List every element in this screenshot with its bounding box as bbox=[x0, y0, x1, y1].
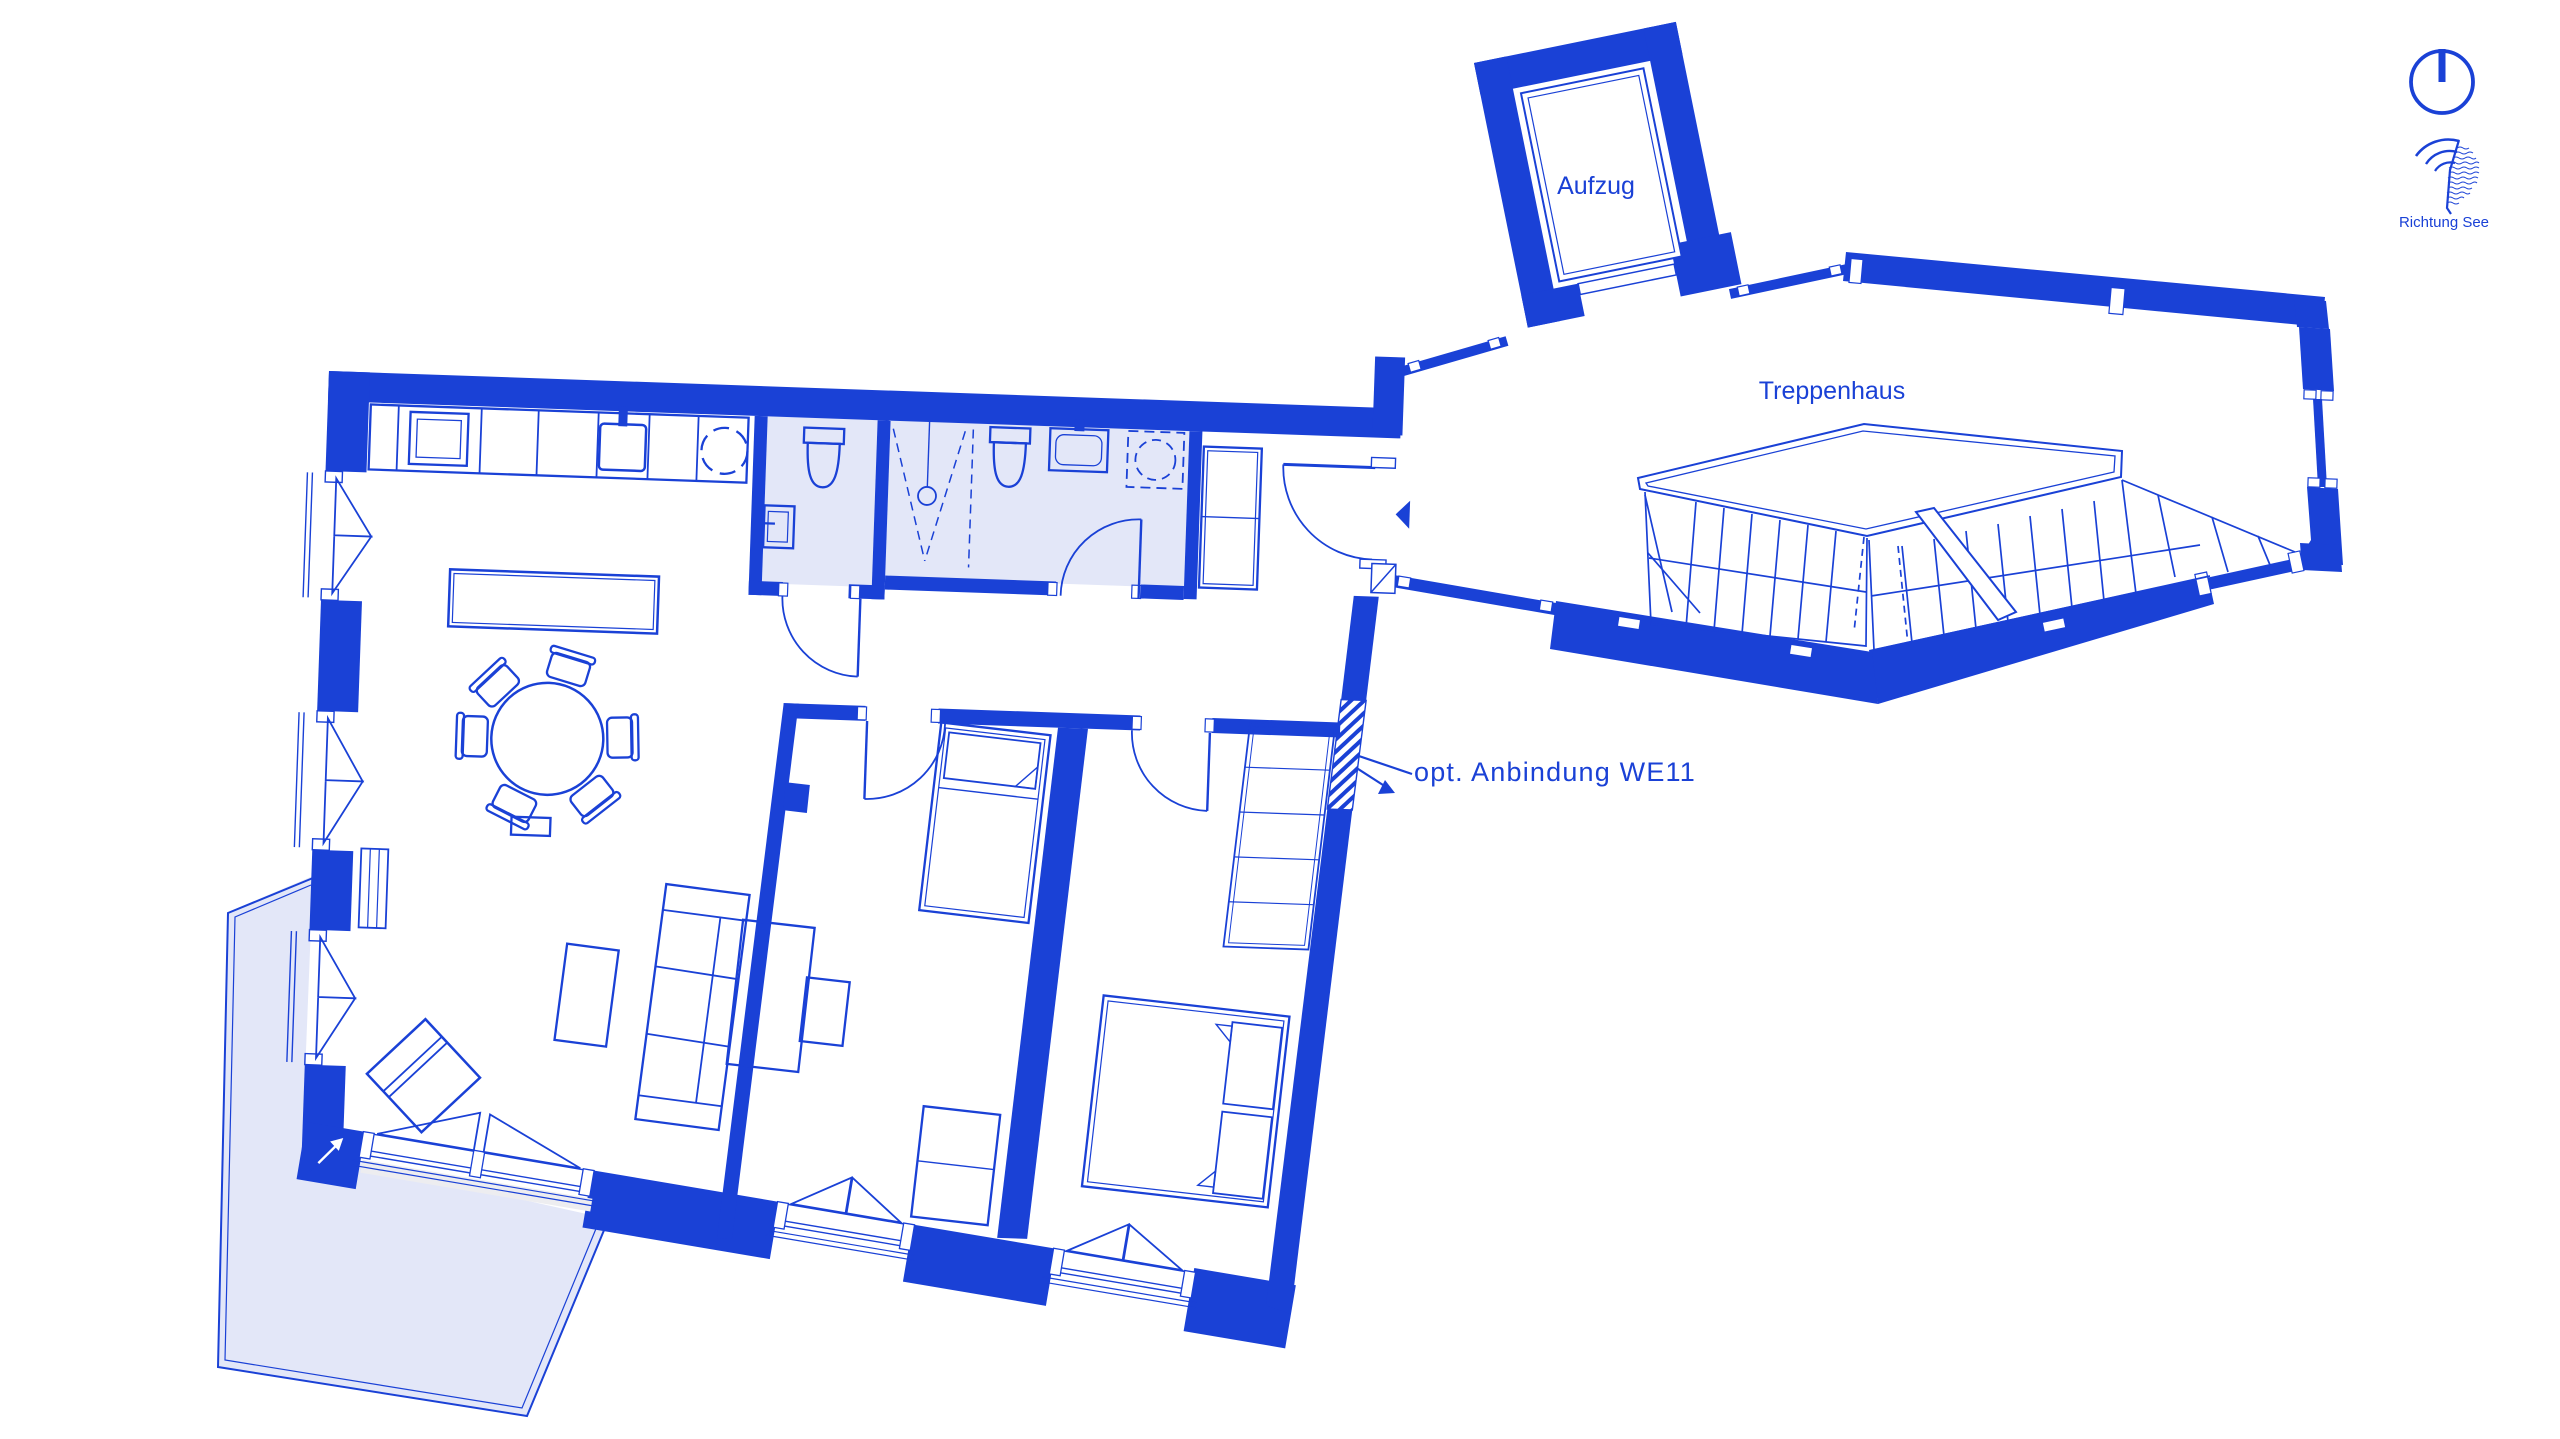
svg-text:Aufzug: Aufzug bbox=[1557, 172, 1635, 200]
svg-text:Richtung See: Richtung See bbox=[2399, 214, 2489, 231]
svg-text:Treppenhaus: Treppenhaus bbox=[1759, 377, 1905, 405]
svg-text:opt. Anbindung WE11: opt. Anbindung WE11 bbox=[1414, 757, 1696, 787]
